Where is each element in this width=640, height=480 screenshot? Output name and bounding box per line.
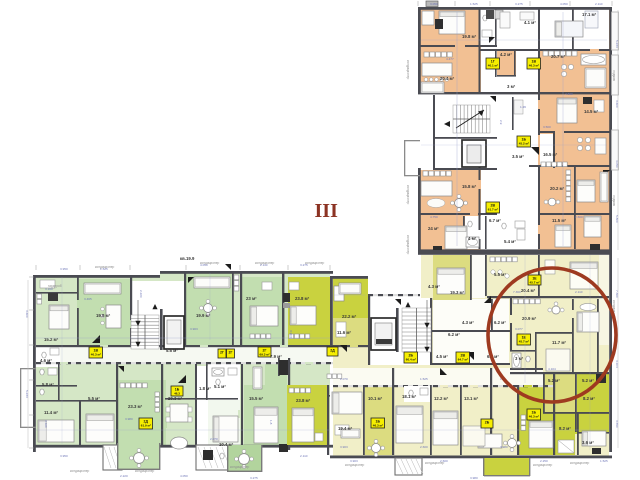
svg-text:3.950: 3.950 (60, 267, 68, 271)
svg-text:4.050: 4.050 (560, 2, 568, 6)
svg-text:64.7 м²: 64.7 м² (458, 358, 468, 362)
svg-text:5.233: 5.233 (25, 390, 29, 398)
svg-text:2Г: 2Г (229, 350, 233, 354)
svg-text:5.6 м²: 5.6 м² (166, 348, 178, 353)
svg-text:23.8 м²: 23.8 м² (295, 296, 310, 301)
svg-text:24 м²: 24 м² (428, 226, 439, 231)
svg-text:15.8 м²: 15.8 м² (462, 184, 477, 189)
svg-text:7.360: 7.360 (615, 290, 619, 298)
svg-text:3.903: 3.903 (190, 327, 198, 331)
svg-text:40.1 м²: 40.1 м² (488, 64, 498, 68)
svg-text:8.2 м²: 8.2 м² (583, 396, 595, 401)
svg-text:16.5 м²: 16.5 м² (543, 152, 558, 157)
svg-text:4.5 м²: 4.5 м² (436, 354, 448, 359)
svg-text:19.8 м²: 19.8 м² (462, 34, 477, 39)
svg-text:2.600: 2.600 (575, 215, 583, 219)
svg-text:5.5 м²: 5.5 м² (88, 396, 100, 401)
svg-text:5.5 м²: 5.5 м² (494, 272, 506, 277)
svg-text:4.6 м²: 4.6 м² (40, 358, 52, 363)
svg-text:2.110: 2.110 (595, 2, 603, 6)
svg-text:6.2 м²: 6.2 м² (494, 320, 506, 325)
svg-text:1.26: 1.26 (520, 105, 526, 109)
svg-text:18.1 м²: 18.1 м² (402, 394, 417, 399)
svg-text:1.8: 1.8 (269, 420, 273, 425)
svg-text:1Е: 1Е (532, 276, 537, 280)
svg-text:4.1 м²: 4.1 м² (524, 20, 536, 25)
svg-text:3.903: 3.903 (289, 330, 293, 338)
svg-text:19.9 м²: 19.9 м² (196, 313, 211, 318)
svg-text:кондиционер: кондиционер (345, 463, 365, 467)
svg-text:5.1 м²: 5.1 м² (214, 384, 226, 389)
svg-text:46.3 м²: 46.3 м² (529, 64, 539, 68)
svg-text:5.233: 5.233 (615, 40, 619, 48)
svg-text:1.525: 1.525 (470, 2, 478, 6)
svg-text:3.600: 3.600 (25, 310, 29, 318)
svg-text:20.7 м²: 20.7 м² (551, 54, 566, 59)
svg-text:2Б: 2Б (409, 353, 414, 357)
svg-text:2Г: 2Г (263, 348, 267, 352)
svg-text:2.9: 2.9 (499, 120, 503, 125)
svg-text:4.104: 4.104 (615, 360, 619, 368)
svg-text:кондиционер: кондиционер (533, 463, 553, 467)
svg-text:3.275: 3.275 (250, 476, 258, 480)
svg-text:22.2 м²: 22.2 м² (342, 314, 357, 319)
svg-text:3.550: 3.550 (615, 420, 619, 428)
svg-text:2.220: 2.220 (139, 290, 143, 298)
svg-text:5.4 м²: 5.4 м² (504, 239, 516, 244)
svg-text:6.7 м²: 6.7 м² (489, 218, 501, 223)
svg-text:1Б: 1Б (175, 387, 180, 391)
svg-text:4 м²: 4 м² (468, 236, 477, 241)
svg-text:5.800: 5.800 (615, 215, 619, 223)
svg-text:кондиционер: кондиционер (230, 465, 250, 469)
svg-text:20.4 м²: 20.4 м² (521, 288, 536, 293)
svg-text:7.9 м²: 7.9 м² (270, 354, 282, 359)
svg-text:4.750: 4.750 (430, 215, 438, 219)
svg-text:2.070: 2.070 (210, 437, 218, 441)
svg-text:60.4 м²: 60.4 м² (406, 358, 416, 362)
svg-text:3.980: 3.980 (125, 417, 133, 421)
svg-text:2Д: 2Д (144, 419, 149, 423)
svg-text:кондиционер: кондиционер (255, 261, 275, 265)
svg-text:2Д: 2Д (330, 348, 335, 352)
svg-text:40.3 м²: 40.3 м² (91, 353, 101, 357)
svg-text:2.110: 2.110 (300, 454, 308, 458)
svg-text:4.050: 4.050 (180, 474, 188, 478)
svg-text:20.4 м²: 20.4 м² (440, 76, 455, 81)
svg-text:2.250: 2.250 (540, 459, 548, 463)
svg-text:кондиционер: кондиционер (570, 461, 590, 465)
svg-text:лоджия: лоджия (612, 195, 616, 206)
svg-text:10.4 м²: 10.4 м² (219, 442, 234, 447)
svg-text:12.2 м²: 12.2 м² (434, 396, 449, 401)
svg-text:3.980: 3.980 (470, 476, 478, 480)
svg-text:20.2 м²: 20.2 м² (550, 186, 565, 191)
svg-text:20.3 м²: 20.3 м² (168, 396, 183, 401)
svg-text:3.6 м²: 3.6 м² (582, 440, 594, 445)
svg-text:кондиционер: кондиционер (406, 235, 410, 255)
svg-text:1Е: 1Е (522, 335, 527, 339)
svg-text:2.600: 2.600 (420, 445, 428, 449)
svg-text:20.9 м²: 20.9 м² (522, 316, 537, 321)
svg-text:8.2 м²: 8.2 м² (559, 426, 571, 431)
svg-text:3.160: 3.160 (45, 287, 53, 291)
svg-text:61.7 м²: 61.7 м² (488, 208, 498, 212)
svg-text:2.220: 2.220 (120, 474, 128, 478)
svg-text:4.050: 4.050 (615, 160, 619, 168)
svg-text:2.600: 2.600 (440, 459, 448, 463)
svg-text:1В: 1В (532, 59, 537, 63)
svg-text:3.160: 3.160 (44, 420, 48, 428)
svg-text:4.2 м²: 4.2 м² (500, 52, 512, 57)
svg-text:11.4 м²: 11.4 м² (44, 410, 58, 415)
svg-text:3.600: 3.600 (615, 100, 619, 108)
svg-text:2Б: 2Б (485, 420, 490, 424)
svg-text:3.950: 3.950 (60, 454, 68, 458)
svg-text:61.9 м²: 61.9 м² (141, 424, 151, 428)
svg-text:3.275: 3.275 (515, 2, 523, 6)
svg-text:1.525: 1.525 (600, 459, 608, 463)
svg-text:кондиционер: кондиционер (406, 60, 410, 80)
svg-text:19.3 м²: 19.3 м² (450, 290, 465, 295)
svg-text:17.1 м²: 17.1 м² (582, 12, 597, 17)
svg-text:3.903: 3.903 (340, 445, 348, 449)
svg-text:5.2 м²: 5.2 м² (548, 378, 560, 383)
svg-text:2В: 2В (491, 203, 496, 207)
svg-text:6.2 м²: 6.2 м² (448, 332, 460, 337)
svg-text:кондиционер: кондиционер (305, 261, 325, 265)
svg-text:III: III (315, 200, 339, 222)
svg-text:кондиционер: кондиционер (135, 469, 155, 473)
svg-text:4.104: 4.104 (548, 367, 556, 371)
svg-text:3.903: 3.903 (350, 459, 358, 463)
svg-text:4.600: 4.600 (565, 92, 573, 96)
svg-text:3 м²: 3 м² (507, 84, 516, 89)
svg-text:4.477: 4.477 (446, 57, 454, 61)
svg-text:46.3 м²: 46.3 м² (529, 415, 539, 419)
svg-text:3.465: 3.465 (84, 297, 92, 301)
svg-text:45.7 м²: 45.7 м² (530, 281, 540, 285)
svg-text:7.360: 7.360 (513, 290, 521, 294)
svg-text:3.980: 3.980 (500, 445, 508, 449)
svg-text:1Г: 1Г (491, 59, 495, 63)
svg-text:15.5 м²: 15.5 м² (249, 396, 264, 401)
svg-text:2.110: 2.110 (575, 290, 583, 294)
svg-text:45.7 м²: 45.7 м² (519, 340, 529, 344)
svg-text:1.525: 1.525 (420, 377, 428, 381)
svg-text:14.5 м²: 14.5 м² (584, 109, 599, 114)
svg-text:11.7 м²: 11.7 м² (552, 340, 566, 345)
svg-text:3.500: 3.500 (543, 125, 551, 129)
svg-text:2Г: 2Г (220, 350, 224, 354)
svg-text:46.3 м²: 46.3 м² (373, 424, 383, 428)
svg-text:19.8 м²: 19.8 м² (96, 313, 111, 318)
svg-text:11.5 м²: 11.5 м² (552, 218, 566, 223)
svg-text:11.6 м²: 11.6 м² (337, 330, 351, 335)
svg-text:13.1 м²: 13.1 м² (464, 396, 479, 401)
svg-text:19.4 м²: 19.4 м² (338, 426, 353, 431)
svg-text:3.077: 3.077 (515, 327, 523, 331)
svg-text:4.3 м²: 4.3 м² (462, 320, 474, 325)
svg-text:1Б: 1Б (522, 137, 527, 141)
svg-text:кондиционер: кондиционер (95, 265, 115, 269)
svg-text:2.070: 2.070 (340, 377, 348, 381)
svg-text:15.2 м²: 15.2 м² (44, 337, 59, 342)
svg-text:1Б: 1Б (532, 410, 537, 414)
svg-text:кондиционер: кондиционер (70, 469, 90, 473)
svg-text:69.3 м²: 69.3 м² (260, 353, 270, 357)
svg-text:лоджия: лоджия (612, 70, 616, 81)
svg-text:10.1 м²: 10.1 м² (368, 396, 383, 401)
svg-text:23.3 м²: 23.3 м² (128, 404, 143, 409)
svg-text:1В: 1В (94, 348, 99, 352)
svg-text:2В: 2В (461, 353, 466, 357)
svg-text:4.3 м²: 4.3 м² (428, 284, 440, 289)
svg-text:3.050: 3.050 (430, 2, 438, 6)
svg-text:5.8 м²: 5.8 м² (42, 382, 54, 387)
svg-text:3 м²: 3 м² (515, 356, 524, 361)
svg-text:кв.19.9: кв.19.9 (180, 256, 195, 261)
svg-text:кондиционер: кондиционер (200, 261, 220, 265)
svg-text:23.8 м²: 23.8 м² (296, 398, 311, 403)
svg-text:1Б: 1Б (376, 419, 381, 423)
svg-text:5.2 м²: 5.2 м² (582, 378, 594, 383)
svg-text:23 м²: 23 м² (246, 296, 257, 301)
svg-text:1.8 м²: 1.8 м² (199, 386, 211, 391)
svg-text:кондиционер: кондиционер (406, 185, 410, 205)
svg-text:3.5 м²: 3.5 м² (512, 154, 524, 159)
